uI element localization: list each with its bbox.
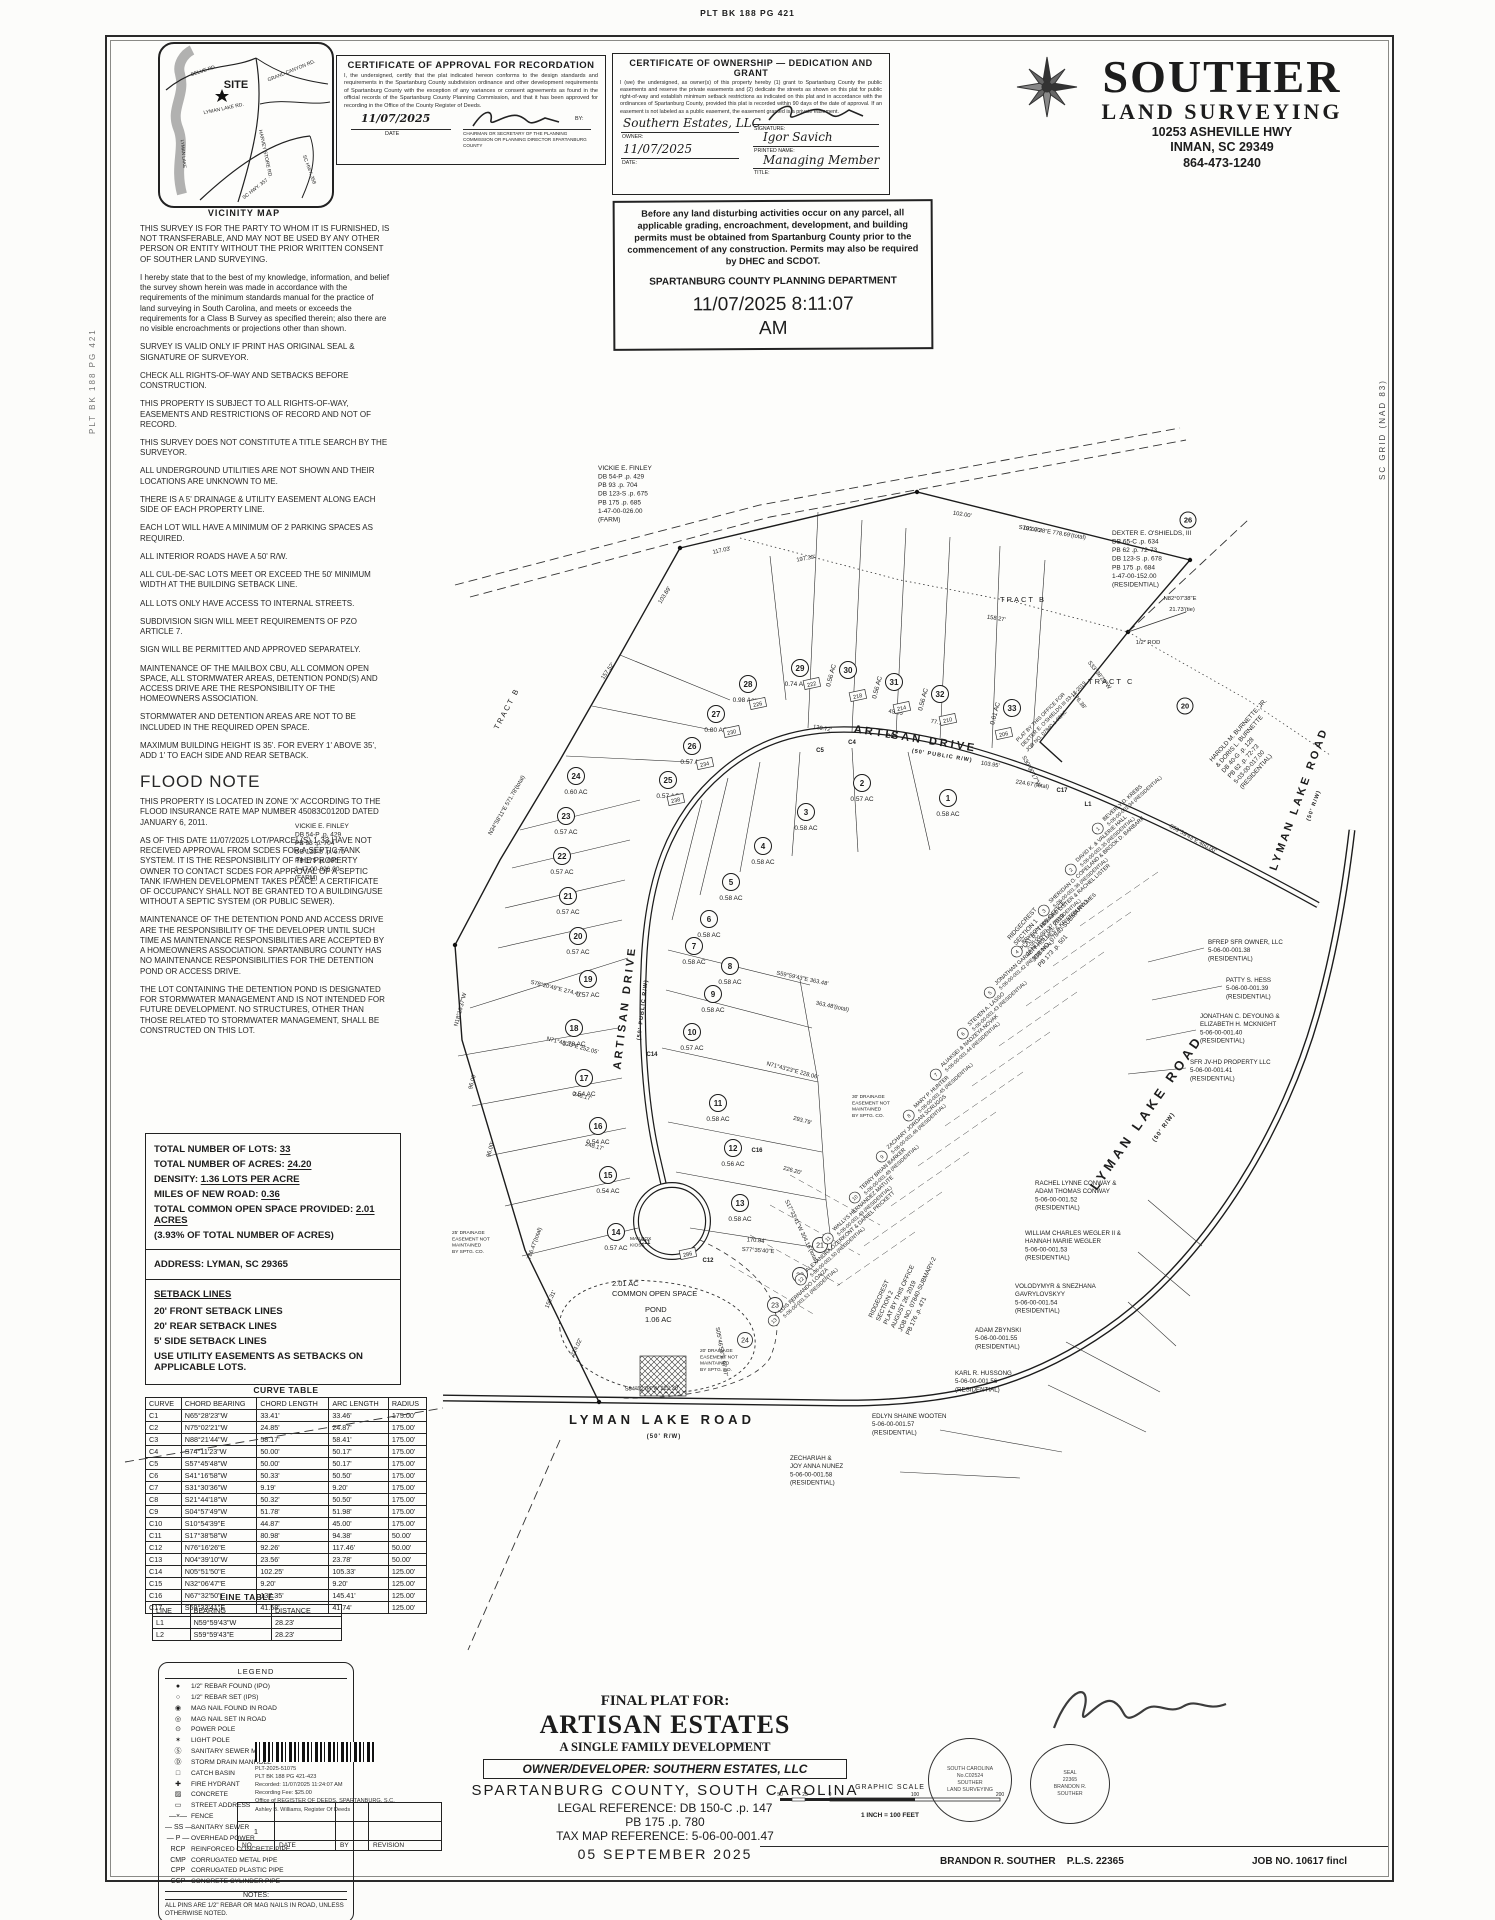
cmp-icon: CMP (165, 1856, 191, 1867)
legend-item: CMPCORRUGATED METAL PIPE (165, 1856, 347, 1867)
legend-item: ●1/2" REBAR FOUND (IPO) (165, 1682, 347, 1693)
survey-note: MAINTENANCE OF THE MAILBOX CBU, ALL COMM… (140, 664, 390, 705)
legend-item: CCPCONCRETE CYLINDER PIPE (165, 1877, 347, 1888)
legend-label: CATCH BASIN (191, 1770, 235, 1777)
table-cell: S74°11'23"W (181, 1446, 257, 1458)
rebar-found-icon: ● (165, 1682, 191, 1693)
survey-note: THERE IS A 5' DRAINAGE & UTILITY EASEMEN… (140, 495, 390, 515)
table-cell: 50.00' (257, 1458, 329, 1470)
legend-item: CPPCORRUGATED PLASTIC PIPE (165, 1866, 347, 1877)
certificate-ownership-title: CERTIFICATE OF OWNERSHIP — DEDICATION AN… (613, 54, 889, 80)
table-cell: N76°16'26"E (181, 1542, 257, 1554)
svg-text:25: 25 (802, 1792, 808, 1798)
legend-item: ⊙POWER POLE (165, 1725, 347, 1736)
legend-item: ○1/2" REBAR SET (IPS) (165, 1693, 347, 1704)
approval-date-value: 11/07/2025 (361, 112, 430, 125)
legend-label: CORRUGATED METAL PIPE (191, 1857, 277, 1864)
total-lots-value: 33 (280, 1144, 291, 1155)
table-cell: C11 (146, 1530, 182, 1542)
approval-signer-label: CHAIRMAN OR SECRETARY OF THE PLANNING CO… (463, 131, 593, 149)
light-pole-icon: ✶ (165, 1736, 191, 1747)
legend-label: MAG NAIL FOUND IN ROAD (191, 1705, 277, 1712)
surveyor-seal: SEAL22365BRANDON R.SOUTHER (1030, 1744, 1110, 1824)
table-cell: 125.00' (388, 1602, 426, 1614)
table-cell: S21°44'18"W (181, 1494, 257, 1506)
curve-row: C1N65°28'23"W33.41'33.46'175.00' (146, 1410, 427, 1422)
legend-label: 1/2" REBAR SET (IPS) (191, 1694, 258, 1701)
table-cell: 175.00' (388, 1410, 426, 1422)
rcp-icon: RCP (165, 1845, 191, 1856)
table-cell: 175.00' (388, 1446, 426, 1458)
ownership-signature (761, 102, 871, 126)
legend-notes-body: ALL PINS ARE 1/2" REBAR OR MAG NAILS IN … (165, 1900, 347, 1918)
planning-stamp: Before any land disturbing activities oc… (613, 199, 934, 351)
table-cell: 50.50' (329, 1494, 389, 1506)
survey-note: MAXIMUM BUILDING HEIGHT IS 35'. FOR EVER… (140, 741, 390, 761)
recording-stamp-line: PLT BK 188 PG 421-423 (255, 1773, 450, 1781)
seal-text: SOUTHER (1054, 1791, 1087, 1798)
hydrant-icon: ✚ (165, 1780, 191, 1791)
table-cell: C7 (146, 1482, 182, 1494)
table-header: CHORD LENGTH (257, 1398, 329, 1410)
table-cell: 102.25' (257, 1566, 329, 1578)
legend-caption: LEGEND (165, 1667, 347, 1679)
catch-basin-icon: □ (165, 1769, 191, 1780)
table-cell: 50.33' (257, 1470, 329, 1482)
survey-note: SUBDIVISION SIGN WILL MEET REQUIREMENTS … (140, 617, 390, 637)
table-cell: S10°54'39"E (181, 1518, 257, 1530)
table-cell: 175.00' (388, 1494, 426, 1506)
vicinity-map: SITEBELUE RD.LYMAN LAKE RD.GRAND CANYON … (158, 42, 334, 208)
curve-row: C5S57°45'48"W50.00'50.17'175.00' (146, 1458, 427, 1470)
svg-text:100: 100 (911, 1792, 920, 1798)
ccp-icon: CCP (165, 1877, 191, 1888)
total-lots-label: TOTAL NUMBER OF LOTS: (154, 1144, 277, 1155)
legend-item: ◉MAG NAIL FOUND IN ROAD (165, 1704, 347, 1715)
table-cell: C6 (146, 1470, 182, 1482)
curve-table: CURVE TABLE CURVECHORD BEARINGCHORD LENG… (145, 1385, 427, 1614)
seal-text: SEAL (1054, 1770, 1087, 1777)
table-cell: 175.00' (388, 1434, 426, 1446)
table-cell: N65°28'23"W (181, 1410, 257, 1422)
survey-notes: THIS SURVEY IS FOR THE PARTY TO WHOM IT … (140, 224, 390, 1044)
total-acres-label: TOTAL NUMBER OF ACRES: (154, 1159, 285, 1170)
table-cell: S04°57'49"W (181, 1506, 257, 1518)
survey-note: SURVEY IS VALID ONLY IF PRINT HAS ORIGIN… (140, 342, 390, 362)
table-cell: 23.56' (257, 1554, 329, 1566)
open-space-label: TOTAL COMMON OPEN SPACE PROVIDED: (154, 1204, 353, 1215)
table-cell: C8 (146, 1494, 182, 1506)
sewer-icon: — SS — (165, 1823, 191, 1834)
license-seal: SOUTH CAROLINANo.C02524SOUTHERLAND SURVE… (928, 1738, 1012, 1822)
revision-header: BY (336, 1841, 369, 1851)
revision-header: NO. (238, 1841, 275, 1851)
owner-developer: OWNER/DEVELOPER: SOUTHERN ESTATES, LLC (483, 1759, 847, 1779)
svg-text:50: 50 (777, 1792, 783, 1798)
footer-surveyor: BRANDON R. SOUTHER P.L.S. 22365 (940, 1856, 1240, 1867)
table-cell: 9.20' (329, 1578, 389, 1590)
table-cell: C5 (146, 1458, 182, 1470)
recording-stamp-line: Recording Fee: $25.00 (255, 1789, 450, 1797)
table-cell: 175.00' (388, 1506, 426, 1518)
table-cell: N59°59'43"W (190, 1617, 271, 1629)
survey-note: THIS SURVEY DOES NOT CONSTITUTE A TITLE … (140, 438, 390, 458)
table-cell: 117.46' (329, 1542, 389, 1554)
vicinity-label: SC HWY. 357 (242, 177, 270, 201)
table-cell: 33.46' (329, 1410, 389, 1422)
survey-note: EACH LOT WILL HAVE A MINIMUM OF 2 PARKIN… (140, 523, 390, 543)
mag-found-icon: ◉ (165, 1704, 191, 1715)
seal-text: No.C02524 (947, 1773, 993, 1780)
compass-rose-icon (1015, 55, 1079, 119)
vicinity-caption: VICINITY MAP (158, 208, 330, 218)
survey-note: CHECK ALL RIGHTS-OF-WAY AND SETBACKS BEF… (140, 371, 390, 391)
planning-stamp-datetime: 11/07/2025 8:11:07 (623, 292, 923, 318)
table-cell: S59°59'43"E (190, 1629, 271, 1641)
brand-subtitle: LAND SURVEYING (1089, 99, 1355, 125)
table-cell: S31°30'36"W (181, 1482, 257, 1494)
seal-text: BRANDON R. (1054, 1784, 1087, 1791)
table-header: CHORD BEARING (181, 1398, 257, 1410)
table-cell: 92.26' (257, 1542, 329, 1554)
svg-text:0: 0 (829, 1792, 832, 1798)
mag-set-icon: ◎ (165, 1715, 191, 1726)
power-icon: — P — (165, 1834, 191, 1845)
line-table: LINE TABLE LINEBEARINGDISTANCEL1N59°59'4… (152, 1592, 342, 1641)
table-cell: 58.41' (329, 1434, 389, 1446)
density-value: 1.36 LOTS PER ACRE (201, 1174, 300, 1185)
table-cell: 175.00' (388, 1458, 426, 1470)
flood-note-title: FLOOD NOTE (140, 771, 390, 793)
surveyor-signature (1040, 1676, 1240, 1746)
final-plat-for: FINAL PLAT FOR: (455, 1693, 875, 1710)
footer-job: JOB NO. 10617 fincl (1252, 1856, 1347, 1867)
totals-box: TOTAL NUMBER OF LOTS: 33 TOTAL NUMBER OF… (145, 1133, 401, 1385)
table-cell: C14 (146, 1566, 182, 1578)
brand-phone: 864-473-1240 (1089, 156, 1355, 172)
table-cell: N88°21'44"W (181, 1434, 257, 1446)
survey-note: MAINTENANCE OF THE DETENTION POND AND AC… (140, 915, 390, 976)
setback-note: USE UTILITY EASEMENTS AS SETBACKS ON APP… (154, 1351, 392, 1373)
survey-note: STORMWATER AND DETENTION AREAS ARE NOT T… (140, 712, 390, 732)
cpp-icon: CPP (165, 1866, 191, 1877)
table-cell: 9.19' (257, 1482, 329, 1494)
table-cell: 51.78' (257, 1506, 329, 1518)
table-header: CURVE (146, 1398, 182, 1410)
vicinity-road (260, 102, 330, 104)
table-cell: 50.50' (329, 1470, 389, 1482)
curve-row: C9S04°57'49"W51.78'51.98'175.00' (146, 1506, 427, 1518)
fence-icon: —×— (165, 1812, 191, 1823)
revision-table: 1 NO.DATEBYREVISION (237, 1802, 442, 1851)
table-cell: 24.85' (257, 1422, 329, 1434)
brand-address2: INMAN, SC 29349 (1089, 140, 1355, 156)
certificate-ownership: CERTIFICATE OF OWNERSHIP — DEDICATION AN… (612, 53, 890, 195)
curve-row: C12N76°16'26"E92.26'117.46'50.00' (146, 1542, 427, 1554)
legend-label: CORRUGATED PLASTIC PIPE (191, 1867, 284, 1874)
survey-note: THIS PROPERTY IS SUBJECT TO ALL RIGHTS-O… (140, 399, 390, 430)
setback-line: 5' SIDE SETBACK LINES (154, 1336, 392, 1347)
survey-note: THE LOT CONTAINING THE DETENTION POND IS… (140, 985, 390, 1036)
total-acres-value: 24.20 (287, 1159, 311, 1170)
table-cell: C3 (146, 1434, 182, 1446)
table-cell: 175.00' (388, 1422, 426, 1434)
table-header: RADIUS (388, 1398, 426, 1410)
brand-address1: 10253 ASHEVILLE HWY (1089, 125, 1355, 141)
table-cell: C2 (146, 1422, 182, 1434)
setback-line: 20' FRONT SETBACK LINES (154, 1306, 392, 1317)
setback-line: 20' REAR SETBACK LINES (154, 1321, 392, 1332)
surveyor-name: BRANDON R. SOUTHER (940, 1856, 1056, 1867)
line-table-caption: LINE TABLE (152, 1592, 342, 1602)
left-margin-marks: PLT BK 188 PG 421 (88, 14, 97, 434)
certificate-approval-title: CERTIFICATE OF APPROVAL FOR RECORDATION (337, 56, 605, 73)
curve-row: C15N32°06'47"E9.20'9.20'125.00' (146, 1578, 427, 1590)
table-cell: S41°16'58"W (181, 1470, 257, 1482)
line-row: L2S59°59'43"E28.23' (153, 1629, 342, 1641)
vicinity-label: SITE (224, 79, 248, 91)
table-cell: 58.17' (257, 1434, 329, 1446)
table-cell: C9 (146, 1506, 182, 1518)
table-cell: S17°38'58"W (181, 1530, 257, 1542)
table-cell: 50.00' (388, 1554, 426, 1566)
table-cell: 50.17' (329, 1446, 389, 1458)
table-cell: 50.17' (329, 1458, 389, 1470)
revision-no-1: 1 (238, 1822, 275, 1841)
table-cell: 51.98' (329, 1506, 389, 1518)
revision-header: REVISION (369, 1841, 442, 1851)
table-cell: 44.87' (257, 1518, 329, 1530)
curve-row: C2N75°02'21"W24.85'24.87'175.00' (146, 1422, 427, 1434)
survey-note: I hereby state that to the best of my kn… (140, 273, 390, 334)
table-cell: 175.00' (388, 1482, 426, 1494)
recording-stamp-line: PLT-2025-51075 (255, 1765, 450, 1773)
planning-stamp-dept: SPARTANBURG COUNTY PLANNING DEPARTMENT (623, 274, 923, 289)
storm-manhole-icon: Ⓓ (165, 1758, 191, 1769)
table-cell: 45.00' (329, 1518, 389, 1530)
seal-text: LAND SURVEYING (947, 1787, 993, 1794)
table-cell: C1 (146, 1410, 182, 1422)
legend-label: FENCE (191, 1813, 213, 1820)
title-value: Managing Member (763, 153, 879, 167)
tax-map-reference: TAX MAP REFERENCE: 5-06-00-001.47 (455, 1829, 875, 1843)
title-label: TITLE: (754, 170, 770, 176)
table-cell: 80.98' (257, 1530, 329, 1542)
curve-row: C13N04°39'10"W23.56'23.78'50.00' (146, 1554, 427, 1566)
curve-row: C3N88°21'44"W58.17'58.41'175.00' (146, 1434, 427, 1446)
table-cell: 50.00' (388, 1542, 426, 1554)
table-header: ARC LENGTH (329, 1398, 389, 1410)
rebar-set-icon: ○ (165, 1693, 191, 1704)
vicinity-label: BELUE RD. (190, 64, 217, 78)
surveyor-brand: SOUTHER LAND SURVEYING 10253 ASHEVILLE H… (1015, 55, 1355, 172)
table-cell: 94.38' (329, 1530, 389, 1542)
table-cell: 23.78' (329, 1554, 389, 1566)
table-cell: 125.00' (388, 1578, 426, 1590)
table-cell: N04°39'10"W (181, 1554, 257, 1566)
owner-label: OWNER: (622, 134, 643, 140)
curve-row: C7S31°30'36"W9.19'9.20'175.00' (146, 1482, 427, 1494)
approval-by-label: BY: (575, 116, 584, 122)
brand-name: SOUTHER (1089, 55, 1355, 99)
table-cell: 175.00' (388, 1470, 426, 1482)
miles-value: 0.36 (261, 1189, 280, 1200)
ss-manhole-icon: Ⓢ (165, 1747, 191, 1758)
table-cell: 50.00' (257, 1446, 329, 1458)
table-header: DISTANCE (271, 1605, 341, 1617)
legend-label: MAG NAIL SET IN ROAD (191, 1716, 266, 1723)
curve-row: C6S41°16'58"W50.33'50.50'175.00' (146, 1470, 427, 1482)
power-pole-icon: ⊙ (165, 1725, 191, 1736)
subdivision-name: ARTISAN ESTATES (455, 1710, 875, 1740)
ownership-date-label: DATE: (622, 160, 637, 166)
table-cell: C13 (146, 1554, 182, 1566)
legend-label: CONCRETE (191, 1791, 228, 1798)
curve-row: C11S17°38'58"W80.98'94.38'50.00' (146, 1530, 427, 1542)
revision-header: DATE (275, 1841, 336, 1851)
curve-row: C10S10°54'39"E44.87'45.00'175.00' (146, 1518, 427, 1530)
site-address: ADDRESS: LYMAN, SC 29365 (154, 1259, 392, 1270)
table-cell: L2 (153, 1629, 191, 1641)
barcode (255, 1742, 375, 1762)
setback-title: SETBACK LINES (154, 1289, 392, 1300)
curve-table-caption: CURVE TABLE (145, 1385, 427, 1395)
legend-label: 1/2" REBAR FOUND (IPO) (191, 1683, 270, 1690)
table-cell: C15 (146, 1578, 182, 1590)
seal-text: SOUTH CAROLINA (947, 1766, 993, 1773)
ownership-date-value: 11/07/2025 (623, 142, 692, 156)
seal-text: 22365 (1054, 1777, 1087, 1784)
vicinity-label: LYMAN LAKE RD. (203, 102, 244, 116)
table-cell: 9.20' (257, 1578, 329, 1590)
plat-book-header: PLT BK 188 PG 421 (0, 8, 1495, 18)
legend-item: ◎MAG NAIL SET IN ROAD (165, 1715, 347, 1726)
concrete-icon: ▨ (165, 1790, 191, 1801)
open-space-pct: (3.93% OF TOTAL NUMBER OF ACRES) (154, 1230, 392, 1241)
table-cell: C12 (146, 1542, 182, 1554)
table-cell: L1 (153, 1617, 191, 1629)
table-cell: 50.32' (257, 1494, 329, 1506)
plat-scan-page: PLT BK 188 PG 421 PLT BK 188 PG 421 SITE… (0, 0, 1495, 1920)
table-header: BEARING (190, 1605, 271, 1617)
plat-date: 05 SEPTEMBER 2025 (455, 1846, 875, 1862)
development-type: A SINGLE FAMILY DEVELOPMENT (455, 1740, 875, 1755)
certificate-approval: CERTIFICATE OF APPROVAL FOR RECORDATION … (336, 55, 606, 165)
curve-row: C4S74°11'23"W50.00'50.17'175.00' (146, 1446, 427, 1458)
table-cell: 125.00' (388, 1590, 426, 1602)
table-cell: S57°45'48"W (181, 1458, 257, 1470)
survey-note: ALL UNDERGROUND UTILITIES ARE NOT SHOWN … (140, 466, 390, 486)
table-cell: 50.00' (388, 1530, 426, 1542)
surveyor-license: P.L.S. 22365 (1067, 1856, 1124, 1867)
certificate-approval-body: I, the undersigned, certify that the pla… (337, 73, 605, 110)
legend-label: CONCRETE CYLINDER PIPE (191, 1878, 280, 1885)
survey-note: AS OF THIS DATE 11/07/2025 LOT/PARCEL(S)… (140, 836, 390, 908)
table-cell: N32°06'47"E (181, 1578, 257, 1590)
planning-stamp-body: Before any land disturbing activities oc… (623, 207, 923, 268)
table-cell: C4 (146, 1446, 182, 1458)
table-cell: N05°51'50"E (181, 1566, 257, 1578)
table-cell: 125.00' (388, 1566, 426, 1578)
table-cell: 24.87' (329, 1422, 389, 1434)
table-cell: 33.41' (257, 1410, 329, 1422)
line-row: L1N59°59'43"W28.23' (153, 1617, 342, 1629)
table-cell: 28.23' (271, 1629, 341, 1641)
legend-label: POWER POLE (191, 1726, 235, 1733)
table-cell: 175.00' (388, 1518, 426, 1530)
miles-label: MILES OF NEW ROAD: (154, 1189, 258, 1200)
curve-row: C8S21°44'18"W50.32'50.50'175.00' (146, 1494, 427, 1506)
planning-stamp-meridiem: AM (623, 317, 923, 343)
table-header: LINE (153, 1605, 191, 1617)
survey-note: SIGN WILL BE PERMITTED AND APPROVED SEPA… (140, 645, 390, 655)
legend-notes-caption: NOTES: (165, 1891, 347, 1900)
seal-text: SOUTHER (947, 1780, 993, 1787)
right-margin-grid-note: SC GRID (NAD 83) (1378, 330, 1387, 480)
survey-note: THIS SURVEY IS FOR THE PARTY TO WHOM IT … (140, 224, 390, 265)
owner-value: Southern Estates, LLC (623, 116, 761, 130)
table-cell: 9.20' (329, 1482, 389, 1494)
legend-label: FIRE HYDRANT (191, 1781, 240, 1788)
vicinity-label: GRAND CANYON RD. (267, 59, 316, 84)
flood-note-body: THIS PROPERTY IS LOCATED IN ZONE 'X' ACC… (140, 797, 390, 828)
legend-label: LIGHT POLE (191, 1737, 230, 1744)
street-address-icon: ▭ (165, 1801, 191, 1812)
approval-date-label: DATE (385, 131, 399, 137)
survey-note: ALL CUL-DE-SAC LOTS MEET OR EXCEED THE 5… (140, 570, 390, 590)
printed-name-value: Igor Savich (763, 130, 833, 144)
density-label: DENSITY: (154, 1174, 198, 1185)
curve-row: C14N05°51'50"E102.25'105.33'125.00' (146, 1566, 427, 1578)
table-cell: C10 (146, 1518, 182, 1530)
recording-stamp-line: Recorded: 11/07/2025 11:24:07 AM (255, 1781, 450, 1789)
table-cell: 28.23' (271, 1617, 341, 1629)
survey-note: ALL INTERIOR ROADS HAVE A 50' R/W. (140, 552, 390, 562)
title-block: FINAL PLAT FOR: ARTISAN ESTATES A SINGLE… (455, 1693, 875, 1862)
survey-note: ALL LOTS ONLY HAVE ACCESS TO INTERNAL ST… (140, 599, 390, 609)
table-cell: N75°02'21"W (181, 1422, 257, 1434)
table-cell: 105.33' (329, 1566, 389, 1578)
